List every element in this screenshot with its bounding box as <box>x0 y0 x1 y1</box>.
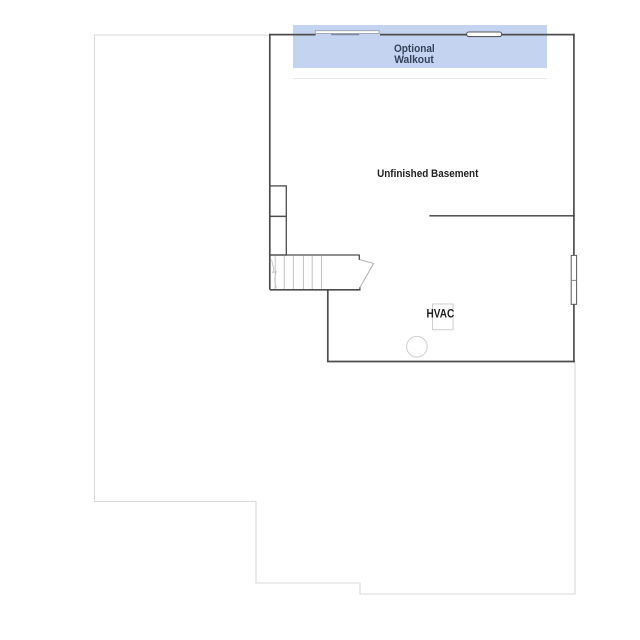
svg-text:HVAC: HVAC <box>427 309 455 321</box>
svg-text:Walkout: Walkout <box>394 54 434 66</box>
svg-text:Unfinished Basement: Unfinished Basement <box>377 168 479 180</box>
